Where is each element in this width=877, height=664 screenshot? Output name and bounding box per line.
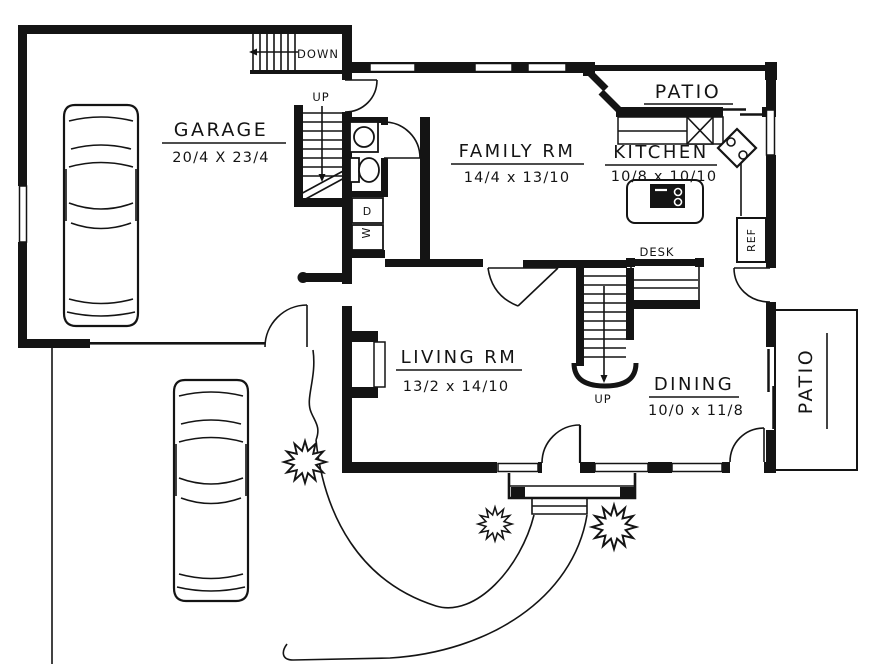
svg-text:13/2 x 14/10: 13/2 x 14/10 [403, 379, 510, 395]
svg-text:FAMILY RM: FAMILY RM [459, 141, 576, 162]
toilet-icon [359, 158, 379, 182]
window [767, 110, 775, 155]
bush [592, 505, 636, 549]
post-column [298, 272, 309, 283]
refrigerator-label: REF [745, 228, 758, 252]
angled-patio-door [583, 66, 623, 114]
powder-room [350, 122, 379, 182]
dryer-label: D [363, 205, 371, 218]
svg-text:DINING: DINING [654, 374, 734, 395]
garage-label: GARAGE 20/4 X 23/4 [162, 119, 286, 166]
bush [478, 507, 512, 541]
window [672, 464, 722, 472]
kitchen-patio-slider [723, 110, 762, 115]
dining-room-label: DINING 10/0 x 11/8 [648, 374, 744, 419]
washer-label: W [360, 227, 373, 238]
garage-car [64, 105, 138, 326]
side-patio-label: PATIO [795, 348, 817, 414]
window [595, 464, 648, 472]
svg-text:20/4 X 23/4: 20/4 X 23/4 [172, 150, 269, 166]
room-labels: GARAGE 20/4 X 23/4 FAMILY RM 14/4 x 13/1… [162, 47, 744, 419]
laundry-closet: D W [352, 198, 383, 250]
side-patio-slider [769, 349, 774, 429]
window [498, 464, 538, 472]
garage-side-door [265, 305, 307, 347]
walkway-path [309, 350, 318, 440]
svg-text:GARAGE: GARAGE [174, 119, 269, 141]
window [370, 64, 415, 72]
svg-text:10/0 x 11/8: 10/0 x 11/8 [648, 403, 744, 419]
window [528, 64, 566, 72]
down-label: DOWN [297, 47, 339, 61]
garage-entry-door [345, 80, 377, 112]
yard-lines [52, 348, 587, 664]
svg-text:KITCHEN: KITCHEN [613, 142, 709, 163]
powder-room-door [384, 122, 420, 158]
svg-text:10/8 x 10/10: 10/8 x 10/10 [611, 169, 718, 185]
kitchen-label: KITCHEN 10/8 x 10/10 [605, 142, 717, 185]
dining-door [730, 428, 764, 462]
floor-plan-drawing: D W REF [0, 0, 877, 664]
up-label-garage: UP [312, 90, 329, 104]
up-arrow [601, 375, 608, 383]
up-label-main: UP [594, 392, 611, 406]
window [475, 64, 512, 72]
rear-door [734, 268, 770, 302]
living-room-label: LIVING RM 13/2 x 14/10 [396, 347, 522, 395]
sink-icon [354, 127, 374, 147]
bush [284, 441, 326, 483]
driveway-car [174, 380, 248, 601]
closet-door [488, 268, 558, 306]
kitchen-fixtures: REF [618, 117, 766, 262]
side-patio: PATIO [775, 310, 857, 470]
svg-text:14/4 x 13/10: 14/4 x 13/10 [464, 170, 571, 186]
porch-steps [532, 498, 587, 514]
floor-plan-page: D W REF [0, 0, 877, 664]
desk-label: DESK [640, 245, 675, 259]
desk [626, 258, 704, 309]
refrigerator: REF [737, 218, 766, 262]
stair-bullnose [574, 363, 636, 386]
kitchen-island [627, 180, 703, 223]
toilet-tank [350, 158, 359, 182]
garage-window [20, 186, 27, 242]
upper-patio-label: PATIO [644, 81, 733, 104]
svg-text:LIVING RM: LIVING RM [401, 347, 518, 368]
fireplace [352, 331, 385, 398]
front-door [542, 425, 580, 463]
family-room-label: FAMILY RM 14/4 x 13/10 [451, 141, 584, 186]
garage-door [90, 342, 265, 345]
sink-icon [687, 117, 713, 144]
front-porch [509, 473, 635, 514]
svg-text:PATIO: PATIO [655, 81, 721, 103]
